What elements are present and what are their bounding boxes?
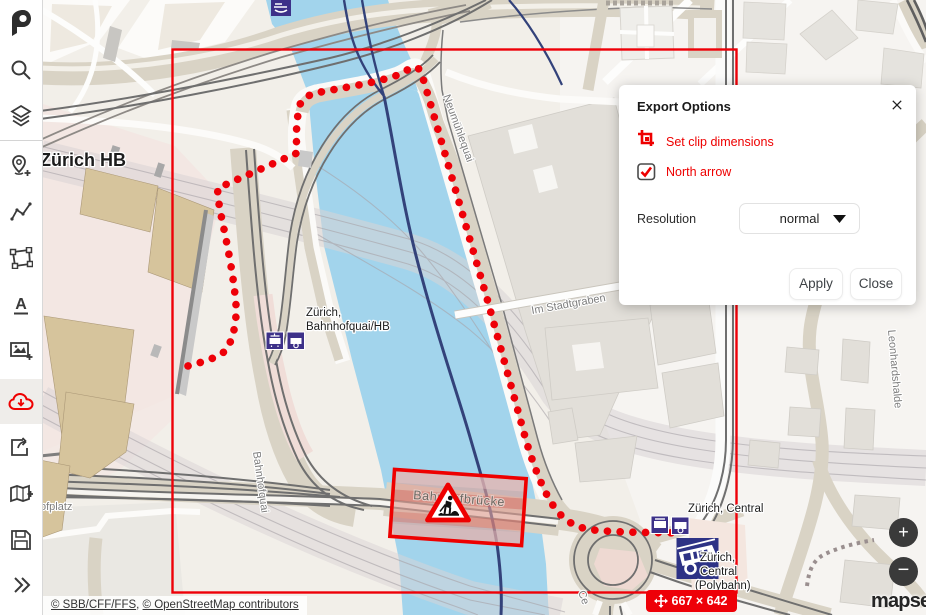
svg-text:Bahnhofquai/HB: Bahnhofquai/HB (306, 321, 390, 333)
svg-text:ofplatz: ofplatz (40, 501, 72, 513)
svg-text:Central: Central (700, 566, 737, 578)
svg-text:A: A (15, 296, 27, 313)
svg-text:Zürich,: Zürich, (700, 552, 735, 564)
svg-text:Zürich,: Zürich, (306, 307, 341, 319)
svg-text:Zürich, Central: Zürich, Central (688, 503, 763, 515)
svg-text:Zürich HB: Zürich HB (40, 150, 126, 170)
